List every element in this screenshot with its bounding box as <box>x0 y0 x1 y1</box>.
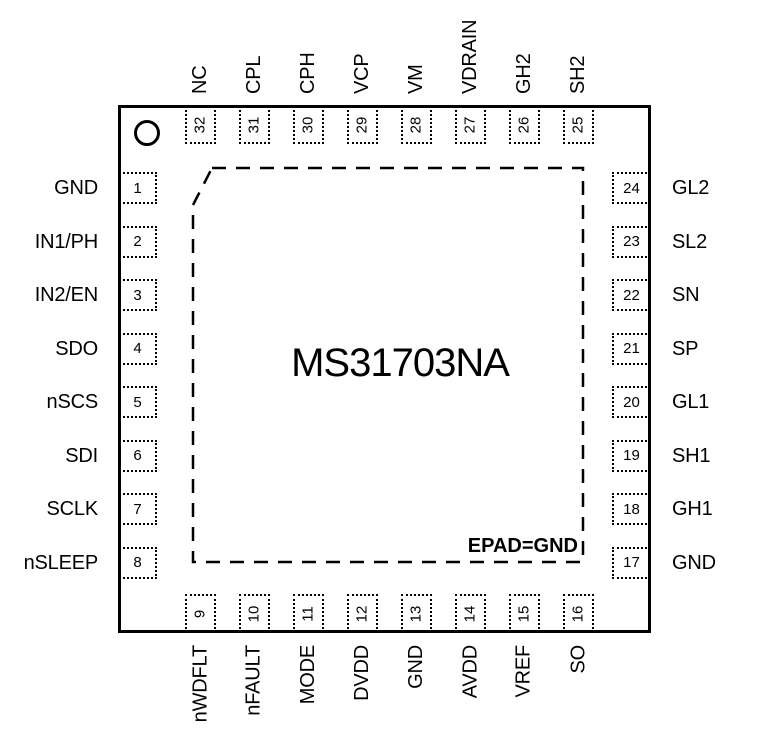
pin-box: 30 <box>293 105 324 144</box>
pin-box: 19 <box>612 440 651 472</box>
pin-label: VREF <box>513 645 535 698</box>
pin-number: 6 <box>120 442 155 470</box>
pin-label: GL1 <box>672 391 709 413</box>
pin-label: nFAULT <box>243 645 265 716</box>
pin-number: 30 <box>301 116 316 133</box>
pin-box: 5 <box>118 386 157 418</box>
pin-number: 18 <box>614 495 649 523</box>
pin-label: CPL <box>243 56 265 94</box>
pin-number: 17 <box>614 549 649 577</box>
pin-label: VDRAIN <box>459 20 481 94</box>
pin-box: 26 <box>509 105 540 144</box>
pin-label: nWDFLT <box>189 645 211 722</box>
pin-box: 18 <box>612 493 651 525</box>
pin-number: 5 <box>120 388 155 416</box>
pin-box: 6 <box>118 440 157 472</box>
pin-box: 4 <box>118 333 157 365</box>
pin-box: 21 <box>612 333 651 365</box>
pin-number: 10 <box>247 605 262 622</box>
epad-label: EPAD=GND <box>378 535 578 557</box>
pin-label: AVDD <box>459 645 481 698</box>
pin-label: GND <box>405 645 427 689</box>
pin-number: 4 <box>120 335 155 363</box>
pin-label: SDI <box>0 445 98 467</box>
pin-number: 22 <box>614 281 649 309</box>
pin-number: 25 <box>571 116 586 133</box>
pin-label: GND <box>0 177 98 199</box>
pin-box: 32 <box>185 105 216 144</box>
pin-number: 15 <box>517 605 532 622</box>
pin-number: 7 <box>120 495 155 523</box>
pin-number: 32 <box>193 116 208 133</box>
pin-box: 15 <box>509 594 540 633</box>
pin-label: GL2 <box>672 177 709 199</box>
pin-box: 22 <box>612 279 651 311</box>
pin-label: GND <box>672 552 716 574</box>
pin-label: VM <box>405 64 427 94</box>
pin-box: 12 <box>347 594 378 633</box>
pin-label: IN1/PH <box>0 231 98 253</box>
pin-box: 29 <box>347 105 378 144</box>
pin-box: 7 <box>118 493 157 525</box>
pin-label: SO <box>567 645 589 674</box>
pin-box: 3 <box>118 279 157 311</box>
pin-box: 27 <box>455 105 486 144</box>
pin-number: 9 <box>193 609 208 617</box>
pin-label: CPH <box>297 52 319 94</box>
pin-box: 14 <box>455 594 486 633</box>
pin-box: 11 <box>293 594 324 633</box>
pin-number: 27 <box>463 116 478 133</box>
pin-box: 13 <box>401 594 432 633</box>
pin-box: 25 <box>563 105 594 144</box>
pin-number: 12 <box>355 605 370 622</box>
pin-number: 16 <box>571 605 586 622</box>
pin-label: GH2 <box>513 53 535 94</box>
pin-box: 10 <box>239 594 270 633</box>
pin-number: 20 <box>614 388 649 416</box>
pin-number: 31 <box>247 116 262 133</box>
pin-label: SCLK <box>0 498 98 520</box>
pin-box: 24 <box>612 172 651 204</box>
pin-box: 23 <box>612 226 651 258</box>
pin-box: 2 <box>118 226 157 258</box>
pinout-diagram: MS31703NA EPAD=GND 1GND2IN1/PH3IN2/EN4SD… <box>0 0 765 742</box>
pin-number: 2 <box>120 228 155 256</box>
pin-number: 29 <box>355 116 370 133</box>
pin-label: GH1 <box>672 498 713 520</box>
pin-label: DVDD <box>351 645 373 701</box>
pin-label: nSLEEP <box>0 552 98 574</box>
pin-number: 13 <box>409 605 424 622</box>
chip-title: MS31703NA <box>283 342 517 384</box>
pin-number: 19 <box>614 442 649 470</box>
pin-number: 14 <box>463 605 478 622</box>
pin-label: SP <box>672 338 698 360</box>
pin-label: SDO <box>0 338 98 360</box>
pin-box: 31 <box>239 105 270 144</box>
pin-number: 28 <box>409 116 424 133</box>
pin-number: 26 <box>517 116 532 133</box>
pin-box: 20 <box>612 386 651 418</box>
pin-number: 11 <box>301 606 316 622</box>
pin-number: 1 <box>120 174 155 202</box>
pin-label: NC <box>189 66 211 95</box>
pin-number: 3 <box>120 281 155 309</box>
pin1-indicator-icon <box>134 120 160 146</box>
pin-box: 8 <box>118 547 157 579</box>
pin-number: 21 <box>614 335 649 363</box>
pin-number: 23 <box>614 228 649 256</box>
pin-label: SL2 <box>672 231 707 253</box>
pin-label: IN2/EN <box>0 284 98 306</box>
pin-box: 28 <box>401 105 432 144</box>
pin-label: SH2 <box>567 56 589 94</box>
pin-box: 17 <box>612 547 651 579</box>
pin-number: 24 <box>614 174 649 202</box>
pin-number: 8 <box>120 549 155 577</box>
pin-label: VCP <box>351 53 373 94</box>
pin-box: 1 <box>118 172 157 204</box>
pin-box: 9 <box>185 594 216 633</box>
pin-label: SH1 <box>672 445 710 467</box>
pin-label: MODE <box>297 645 319 704</box>
pin-label: nSCS <box>0 391 98 413</box>
pin-label: SN <box>672 284 699 306</box>
pin-box: 16 <box>563 594 594 633</box>
